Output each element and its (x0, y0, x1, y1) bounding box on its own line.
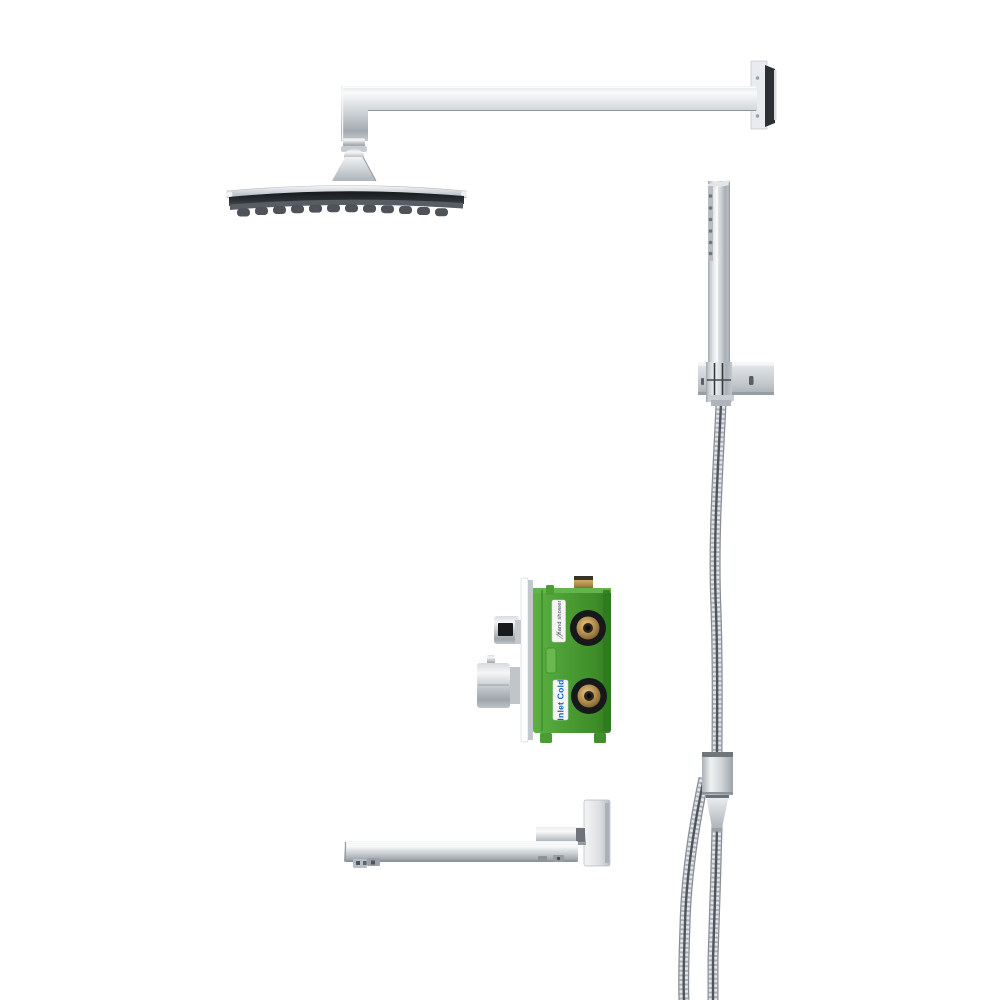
flange-side-dark (765, 65, 775, 127)
shower-arm-body (341, 86, 757, 141)
connector-block (702, 752, 733, 795)
product-photo-canvas: hand shower Inlet Cold (0, 0, 1000, 1000)
joint-nut (343, 138, 365, 147)
flange-screw-bottom (756, 114, 759, 117)
hose-nut (711, 400, 731, 406)
product-photo-shower-system: hand shower Inlet Cold (0, 0, 1000, 1000)
valve-inlet-cold-label: Inlet Cold (553, 679, 568, 720)
hose-connector-fitting (702, 752, 733, 832)
trim-plate-edge (528, 580, 533, 740)
connector-cone-ring (706, 795, 729, 798)
flange-screw-top (756, 76, 759, 79)
tub-spout (344, 841, 578, 868)
valve-trim-plate (521, 578, 533, 742)
spout-outlet-underside (353, 858, 380, 868)
valve-diverter-knob (494, 616, 523, 644)
valve-inlet-cold-text: Inlet Cold (556, 679, 566, 720)
rain-shower-assembly (227, 61, 777, 217)
rough-in-valve-assembly: hand shower Inlet Cold (477, 576, 611, 743)
spout-plate-right-shade (605, 803, 609, 863)
connector-block-top (702, 752, 733, 757)
shower-arm (341, 86, 757, 141)
handheld-shower-wand (708, 180, 730, 365)
head-left-cap (227, 192, 233, 198)
valve-port-top (570, 610, 606, 646)
diverter-knob-dark-band (498, 623, 513, 636)
bracket-face-slot (749, 376, 754, 385)
connector-block-bottom-edge (702, 792, 733, 795)
valve-box-body (533, 588, 611, 733)
valve-box-top-light (533, 588, 611, 593)
valve-box-side-clip (546, 648, 556, 673)
handheld-shower-assembly (684, 180, 774, 1000)
rain-shower-head (227, 186, 468, 217)
bracket-left-notch (701, 378, 704, 385)
rough-in-valve-box: hand shower Inlet Cold (533, 576, 611, 743)
valve-top-port-cap (574, 576, 593, 580)
valve-box-right-shade (603, 590, 610, 731)
valve-box-top-tab (546, 585, 554, 595)
connector-cone-tip (712, 828, 722, 832)
connector-cone (706, 795, 729, 828)
shower-hose-upper (715, 404, 721, 754)
tub-spout-assembly (344, 800, 610, 868)
valve-mixer-knob (477, 655, 520, 708)
valve-top-label: hand shower (552, 600, 566, 642)
valve-top-label-text: hand shower (557, 600, 563, 634)
valve-box-foot-left (540, 733, 552, 743)
spout-connector-joint-dark (576, 828, 585, 842)
shower-head-joint (332, 138, 376, 181)
shower-hose-lower-right (713, 826, 717, 1000)
valve-box-foot-right (594, 733, 606, 743)
mixer-knob-collar (510, 667, 520, 704)
shower-hose-lower-left (684, 778, 704, 1000)
tub-spout-wall-plate (584, 800, 610, 866)
trim-plate-face (521, 578, 528, 742)
valve-port-bottom (571, 678, 607, 714)
flange-edge-highlight (774, 70, 777, 120)
handheld-wall-bracket (698, 362, 774, 406)
